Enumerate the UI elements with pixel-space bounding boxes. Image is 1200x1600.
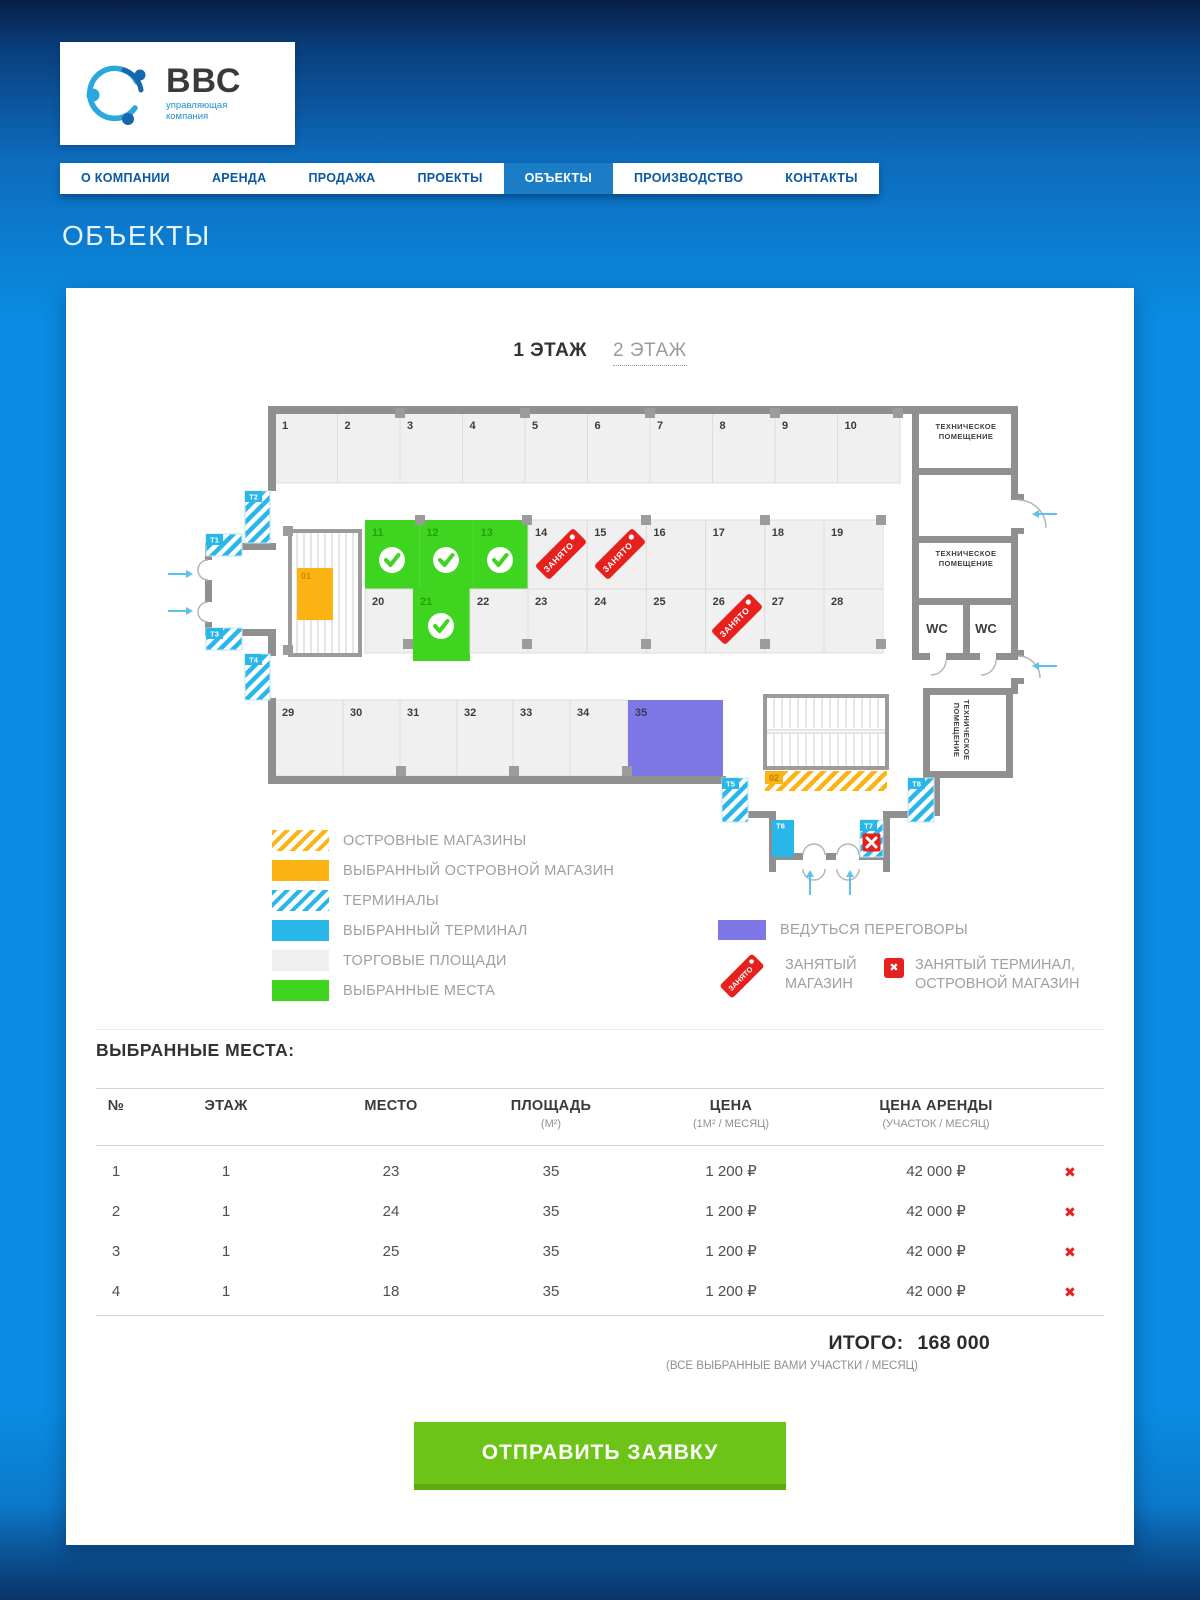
tab-floor-1[interactable]: 1 ЭТАЖ <box>513 340 587 366</box>
terminal-T1[interactable]: T1 <box>206 534 242 556</box>
pillar <box>395 408 405 418</box>
unit-8[interactable]: 8 <box>713 413 776 483</box>
terminal-T3[interactable]: T3 <box>206 628 242 650</box>
island-shop-01[interactable]: 01 <box>297 568 333 620</box>
unit-7[interactable]: 7 <box>650 413 713 483</box>
legend-label: ВЫБРАННЫЙ ОСТРОВНОЙ МАГАЗИН <box>343 863 614 879</box>
remove-row-button[interactable]: ✖ <box>1046 1272 1094 1312</box>
unit-number: 20 <box>372 596 384 608</box>
nav-item-1[interactable]: О КОМПАНИИ <box>60 163 191 194</box>
pillar <box>876 639 886 649</box>
legend-swatch-solid-o <box>272 860 329 881</box>
pillar <box>509 766 519 776</box>
pillar <box>645 408 655 418</box>
unit-number: 1 <box>282 420 288 432</box>
unit-16[interactable]: 16 <box>646 520 705 589</box>
table-row: 1123351 200 ₽42 000 ₽✖ <box>96 1152 1104 1192</box>
direction-arrow <box>806 870 814 895</box>
terminal-label: T4 <box>249 656 259 665</box>
remove-row-button[interactable]: ✖ <box>1046 1152 1094 1192</box>
pillar <box>760 515 770 525</box>
unit-number: 24 <box>594 596 607 608</box>
legend-swatch-green <box>272 980 329 1001</box>
legend-swatch-solid-b <box>272 920 329 941</box>
terminal-T8[interactable]: T8 <box>908 778 934 822</box>
stairs-right <box>765 696 887 768</box>
table-cell: 3 <box>96 1232 136 1272</box>
tech-room-label: ТЕХНИЧЕСКОЕПОМЕЩЕНИЕ <box>936 549 997 568</box>
table-heading: ВЫБРАННЫЕ МЕСТА: <box>96 1040 295 1061</box>
terminal-label: T7 <box>864 822 873 831</box>
unit-18[interactable]: 18 <box>765 520 824 589</box>
check-icon <box>433 547 459 573</box>
unit-33[interactable]: 33 <box>513 700 570 776</box>
unit-number: 33 <box>520 707 532 719</box>
legend-label: ВЕДУТЬСЯ ПЕРЕГОВОРЫ <box>780 922 968 938</box>
unit-number: 23 <box>535 596 547 608</box>
legend-swatch-negotiation <box>718 920 766 940</box>
pillar <box>522 639 532 649</box>
totals-label: ИТОГО: <box>829 1332 904 1354</box>
pillar <box>520 408 530 418</box>
floor-tabs: 1 ЭТАЖ 2 ЭТАЖ <box>66 340 1134 366</box>
unit-number: 25 <box>653 596 665 608</box>
table-cell: 25 <box>316 1232 466 1272</box>
direction-arrow <box>168 607 193 615</box>
remove-row-button[interactable]: ✖ <box>1046 1232 1094 1272</box>
unit-number: 14 <box>535 527 548 539</box>
terminal-T5[interactable]: T5 <box>722 778 748 822</box>
table-row: 2124351 200 ₽42 000 ₽✖ <box>96 1192 1104 1232</box>
unit-6[interactable]: 6 <box>588 413 651 483</box>
unit-10[interactable]: 10 <box>838 413 901 483</box>
unit-number: 28 <box>831 596 843 608</box>
pillar <box>396 766 406 776</box>
table-cell: 1 200 ₽ <box>636 1192 826 1232</box>
unit-25[interactable]: 25 <box>646 589 705 653</box>
nav-item-2[interactable]: АРЕНДА <box>191 163 287 194</box>
unit-32[interactable]: 32 <box>457 700 513 776</box>
unit-27[interactable]: 27 <box>765 589 824 653</box>
logo-subtitle: управляющая компания <box>166 100 241 122</box>
unit-2[interactable]: 2 <box>338 413 401 483</box>
legend-swatch-hatch-o <box>272 830 329 851</box>
unit-number: 21 <box>420 596 432 608</box>
logo-icon <box>82 58 154 130</box>
table-cell: 35 <box>466 1152 636 1192</box>
check-icon <box>379 547 405 573</box>
unit-number: 19 <box>831 527 843 539</box>
table-cell: 35 <box>466 1192 636 1232</box>
table-cell: 42 000 ₽ <box>826 1272 1046 1312</box>
unit-number: 30 <box>350 707 362 719</box>
pillar <box>283 526 293 536</box>
pillar <box>770 408 780 418</box>
submit-request-button[interactable]: ОТПРАВИТЬ ЗАЯВКУ <box>414 1422 786 1490</box>
table-cell: 42 000 ₽ <box>826 1192 1046 1232</box>
legend-item: ВЫБРАННЫЙ ОСТРОВНОЙ МАГАЗИН <box>272 860 614 881</box>
legend-item: ВЫБРАННЫЙ ТЕРМИНАЛ <box>272 920 614 941</box>
nav-item-4[interactable]: ПРОЕКТЫ <box>397 163 504 194</box>
unit-number: 10 <box>845 420 857 432</box>
table-cell: 24 <box>316 1192 466 1232</box>
table-cell: 42 000 ₽ <box>826 1232 1046 1272</box>
legend-label: ТОРГОВЫЕ ПЛОЩАДИ <box>343 953 507 969</box>
unit-31[interactable]: 31 <box>400 700 457 776</box>
terminal-label: T6 <box>776 822 785 831</box>
legend-swatch-gray <box>272 950 329 971</box>
legend-item: ОСТРОВНЫЕ МАГАЗИНЫ <box>272 830 614 851</box>
table-cell: 4 <box>96 1272 136 1312</box>
pillar <box>893 408 903 418</box>
legend-left: ОСТРОВНЫЕ МАГАЗИНЫВЫБРАННЫЙ ОСТРОВНОЙ МА… <box>272 830 614 1010</box>
unit-number: 4 <box>470 420 477 432</box>
unit-number: 31 <box>407 707 419 719</box>
legend-occupied-shop: ЗАНЯТЫЙ МАГАЗИН <box>785 956 857 994</box>
table-cell: 1 <box>136 1232 316 1272</box>
legend-label: ВЫБРАННЫЙ ТЕРМИНАЛ <box>343 923 528 939</box>
pillar <box>876 515 886 525</box>
legend-label: ТЕРМИНАЛЫ <box>343 893 439 909</box>
unit-number: 18 <box>772 527 784 539</box>
table-row: 3125351 200 ₽42 000 ₽✖ <box>96 1232 1104 1272</box>
legend-item: ТОРГОВЫЕ ПЛОЩАДИ <box>272 950 614 971</box>
unit-24[interactable]: 24 <box>587 589 646 653</box>
legend-negotiation: ВЕДУТЬСЯ ПЕРЕГОВОРЫ <box>718 920 968 940</box>
legend-item: ВЫБРАННЫЕ МЕСТА <box>272 980 614 1001</box>
legend-swatch-hatch-b <box>272 890 329 911</box>
occupied-tag-icon: ЗАНЯТО <box>714 948 770 1004</box>
unit-number: 15 <box>594 527 606 539</box>
occupied-x-icon: ✖ <box>884 958 904 978</box>
section-divider <box>96 1029 1104 1030</box>
legend-label: ВЫБРАННЫЕ МЕСТА <box>343 983 495 999</box>
unit-9[interactable]: 9 <box>775 413 838 483</box>
unit-35[interactable]: 35 <box>628 700 723 776</box>
pillar <box>641 515 651 525</box>
terminal-T7[interactable]: T7 <box>860 820 883 857</box>
tab-floor-2[interactable]: 2 ЭТАЖ <box>613 340 687 366</box>
selected-table-body: 1123351 200 ₽42 000 ₽✖2124351 200 ₽42 00… <box>96 1152 1104 1312</box>
terminal-T4[interactable]: T4 <box>245 654 270 700</box>
pillar <box>403 639 413 649</box>
svg-text:02: 02 <box>769 773 779 783</box>
content-card: 1 ЭТАЖ 2 ЭТАЖ 12345678910111213141516171… <box>66 288 1134 1545</box>
logo[interactable]: ВВС управляющая компания <box>60 42 295 145</box>
terminal-label: T2 <box>249 493 258 502</box>
table-cell: 42 000 ₽ <box>826 1152 1046 1192</box>
pillar <box>415 515 425 525</box>
unit-number: 17 <box>713 527 725 539</box>
unit-number: 3 <box>407 420 413 432</box>
terminal-label: T3 <box>210 630 219 639</box>
wc-label: WC <box>975 621 997 636</box>
unit-34[interactable]: 34 <box>570 700 628 776</box>
tech-room-label: ТЕХНИЧЕСКОЕПОМЕЩЕНИЕ <box>952 700 971 761</box>
terminal-label: T1 <box>210 536 219 545</box>
page-title: ОБЪЕКТЫ <box>62 220 211 252</box>
unit-22[interactable]: 22 <box>470 589 528 653</box>
check-icon <box>428 613 454 639</box>
table-header: № ЭТАЖ МЕСТО ПЛОЩАДЬ(М²) ЦЕНА(1М² / МЕСЯ… <box>96 1088 1104 1146</box>
unit-5[interactable]: 5 <box>525 413 588 483</box>
table-cell: 1 <box>136 1152 316 1192</box>
main-nav: О КОМПАНИИАРЕНДАПРОДАЖАПРОЕКТЫОБЪЕКТЫПРО… <box>60 163 879 194</box>
table-cell: 23 <box>316 1152 466 1192</box>
pillar <box>641 639 651 649</box>
unit-number: 11 <box>372 527 384 539</box>
unit-number: 12 <box>426 527 438 539</box>
direction-arrow <box>1032 662 1057 670</box>
unit-number: 8 <box>720 420 726 432</box>
table-cell: 2 <box>96 1192 136 1232</box>
terminal-label: T8 <box>912 780 921 789</box>
svg-text:01: 01 <box>301 571 311 581</box>
unit-28[interactable]: 28 <box>824 589 883 653</box>
table-cell: 1 <box>136 1272 316 1312</box>
unit-1[interactable]: 1 <box>275 413 338 483</box>
nav-item-7[interactable]: КОНТАКТЫ <box>764 163 878 194</box>
nav-item-3[interactable]: ПРОДАЖА <box>287 163 396 194</box>
unit-number: 2 <box>345 420 351 432</box>
unit-number: 26 <box>713 596 725 608</box>
unit-number: 16 <box>653 527 665 539</box>
table-cell: 1 200 ₽ <box>636 1232 826 1272</box>
table-row: 4118351 200 ₽42 000 ₽✖ <box>96 1272 1104 1312</box>
totals-divider <box>96 1315 1104 1316</box>
unit-17[interactable]: 17 <box>706 520 765 589</box>
unit-number: 5 <box>532 420 538 432</box>
table-cell: 1 200 ₽ <box>636 1152 826 1192</box>
terminal-label: T5 <box>726 780 735 789</box>
floor-plan[interactable]: 1234567891011121314151617181920212223242… <box>160 388 1060 902</box>
unit-4[interactable]: 4 <box>463 413 526 483</box>
unit-number: 9 <box>782 420 788 432</box>
legend-occupied-terminal: ЗАНЯТЫЙ ТЕРМИНАЛ, ОСТРОВНОЙ МАГАЗИН <box>915 956 1079 994</box>
unit-23[interactable]: 23 <box>528 589 587 653</box>
unit-number: 7 <box>657 420 663 432</box>
unit-number: 29 <box>282 707 294 719</box>
unit-number: 27 <box>772 596 784 608</box>
unit-number: 34 <box>577 707 590 719</box>
check-icon <box>487 547 513 573</box>
unit-number: 22 <box>477 596 489 608</box>
remove-row-button[interactable]: ✖ <box>1046 1192 1094 1232</box>
unit-number: 6 <box>595 420 601 432</box>
table-cell: 1 200 ₽ <box>636 1272 826 1312</box>
terminal-T6[interactable]: T6 <box>772 820 794 857</box>
terminal-T2[interactable]: T2 <box>245 491 270 543</box>
unit-30[interactable]: 30 <box>343 700 400 776</box>
pillar <box>522 515 532 525</box>
table-cell: 35 <box>466 1272 636 1312</box>
totals-value: 168 000 <box>917 1332 990 1354</box>
table-cell: 1 <box>96 1152 136 1192</box>
totals: ИТОГО:168 000 <box>829 1332 990 1355</box>
legend-item: ТЕРМИНАЛЫ <box>272 890 614 911</box>
tech-room-label: ТЕХНИЧЕСКОЕПОМЕЩЕНИЕ <box>936 422 997 441</box>
island-shop-02[interactable]: 02 <box>765 771 887 791</box>
table-cell: 1 <box>136 1192 316 1232</box>
direction-arrow <box>846 870 854 895</box>
unit-29[interactable]: 29 <box>275 700 343 776</box>
totals-note: (ВСЕ ВЫБРАННЫЕ ВАМИ УЧАСТКИ / МЕСЯЦ) <box>666 1360 918 1372</box>
unit-19[interactable]: 19 <box>824 520 883 589</box>
direction-arrow <box>168 570 193 578</box>
nav-item-6[interactable]: ПРОИЗВОДСТВО <box>613 163 764 194</box>
unit-number: 35 <box>635 707 647 719</box>
wc-label: WC <box>926 621 948 636</box>
table-cell: 35 <box>466 1232 636 1272</box>
pillar <box>760 639 770 649</box>
nav-item-5[interactable]: ОБЪЕКТЫ <box>504 163 613 194</box>
unit-number: 32 <box>464 707 476 719</box>
table-cell: 18 <box>316 1272 466 1312</box>
pillar <box>283 645 293 655</box>
legend-label: ОСТРОВНЫЕ МАГАЗИНЫ <box>343 833 526 849</box>
unit-3[interactable]: 3 <box>400 413 463 483</box>
unit-number: 13 <box>481 527 493 539</box>
logo-title: ВВС <box>166 66 241 96</box>
pillar <box>622 766 632 776</box>
